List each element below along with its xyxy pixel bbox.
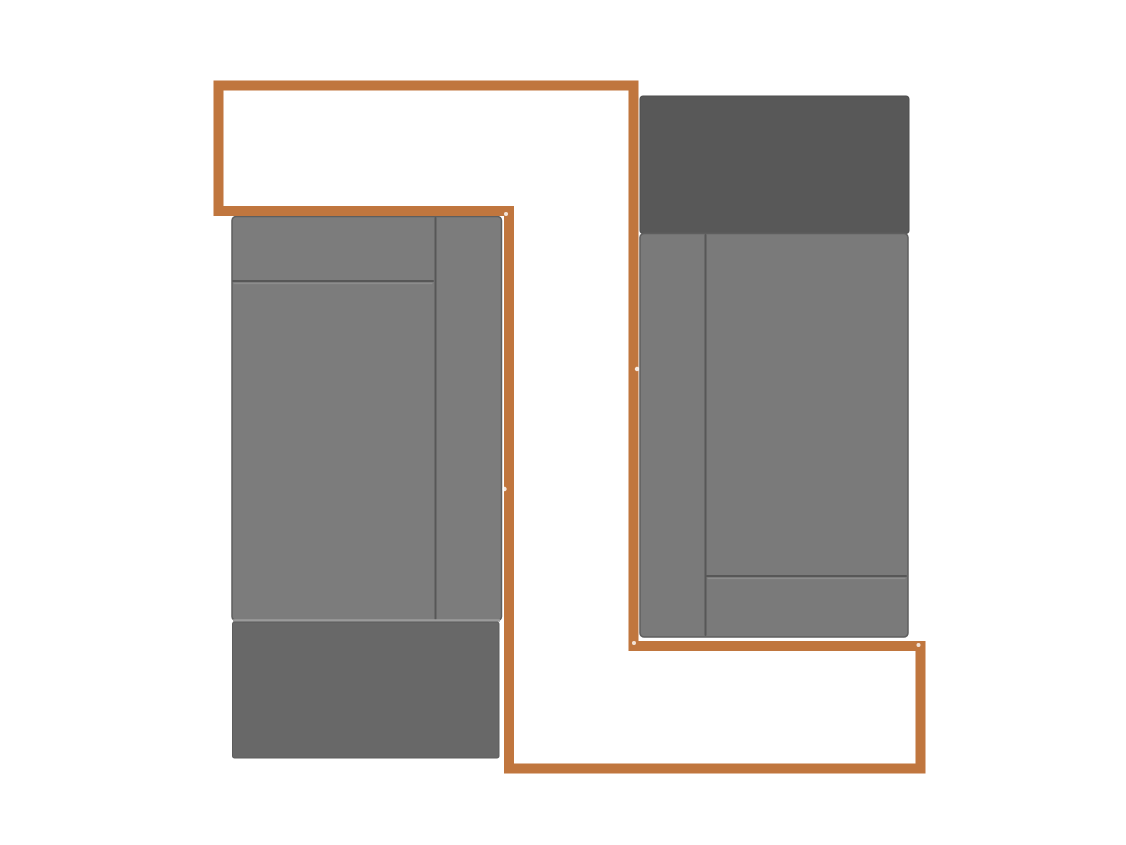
left-cabinet-base-panel[interactable]: [233, 622, 500, 758]
design-canvas: [0, 0, 1126, 845]
left-cabinet-body[interactable]: [232, 217, 502, 621]
right-cabinet-top-panel[interactable]: [640, 96, 909, 234]
path-snap-marker[interactable]: [502, 487, 506, 491]
layout-scene: [0, 0, 1126, 845]
path-snap-marker[interactable]: [504, 212, 508, 216]
path-snap-marker[interactable]: [632, 641, 636, 645]
path-snap-marker[interactable]: [635, 367, 639, 371]
path-snap-marker[interactable]: [917, 643, 921, 647]
